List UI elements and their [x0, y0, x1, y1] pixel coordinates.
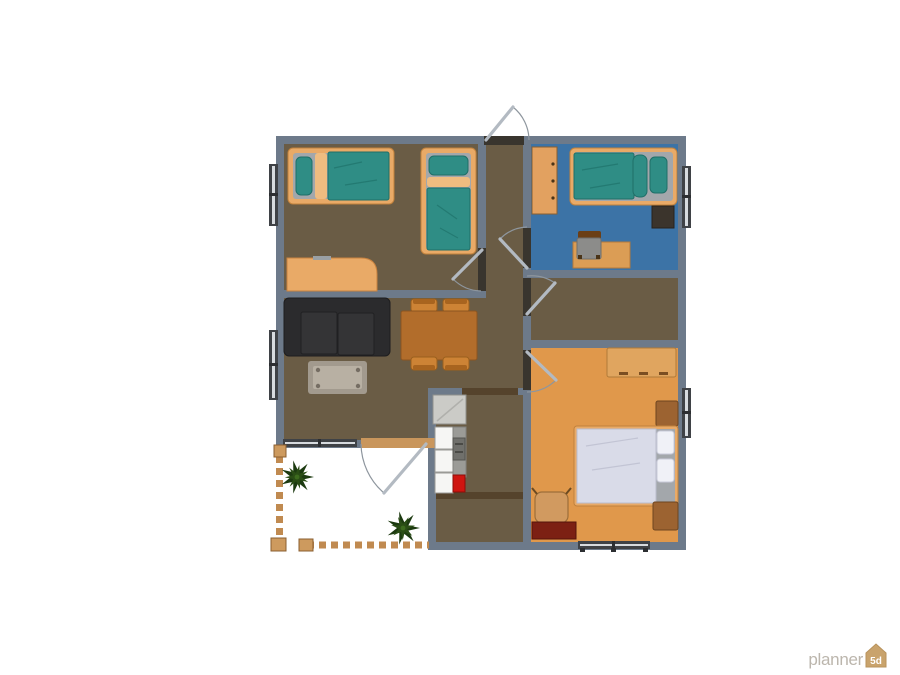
nightstand-bottom[interactable] — [653, 502, 678, 530]
dining-chair-1[interactable] — [411, 299, 437, 312]
wall-corridor-right-d[interactable] — [523, 390, 531, 550]
watermark: planner 5d — [808, 644, 886, 669]
dining-chair-3[interactable] — [411, 357, 437, 370]
wall-blue-room-bottom[interactable] — [523, 270, 686, 278]
fence-post-bottom[interactable] — [299, 539, 313, 551]
entrance-door[interactable] — [486, 107, 529, 140]
window-bottom-living[interactable] — [283, 439, 357, 447]
bed2-blanket-roll — [427, 177, 470, 187]
bed3-pillow — [650, 157, 667, 193]
double-bed[interactable] — [574, 426, 678, 506]
bed3-blanket — [574, 153, 634, 199]
wardrobe[interactable] — [532, 147, 557, 214]
bed1-blanket-roll — [315, 153, 327, 199]
window-right-orange-room[interactable] — [682, 388, 691, 438]
fence-post-corner[interactable] — [271, 538, 286, 551]
single-bed-vertical[interactable] — [421, 148, 476, 254]
watermark-brand-text: planner — [808, 650, 863, 669]
bed2-blanket — [427, 188, 470, 250]
fridge[interactable] — [433, 395, 466, 424]
window-right-blue-room[interactable] — [682, 166, 691, 228]
desk-gray-item — [313, 256, 331, 260]
fence-post-top[interactable] — [274, 445, 286, 457]
blue-room-single-bed[interactable] — [570, 148, 677, 205]
wall-kitchen-top-a[interactable] — [428, 388, 462, 395]
window-left-lower[interactable] — [269, 330, 278, 400]
floor-plan-canvas: planner 5d — [0, 0, 900, 675]
window-left-upper[interactable] — [269, 164, 278, 226]
stove-unit[interactable] — [453, 427, 466, 477]
kitchen-dining-portal[interactable] — [462, 388, 518, 395]
bed1-blanket — [328, 152, 389, 200]
tv-stand[interactable] — [652, 206, 674, 228]
bedroom1-desk[interactable] — [287, 256, 377, 291]
dining-chair-2[interactable] — [443, 299, 469, 312]
watermark-badge-text: 5d — [870, 656, 882, 667]
wall-corridor-right-a[interactable] — [523, 144, 531, 228]
coffee-table[interactable] — [308, 361, 367, 394]
wall-corridor-left[interactable] — [478, 144, 486, 248]
window-bottom-orange-room[interactable] — [578, 541, 650, 552]
dining-table[interactable] — [401, 311, 477, 360]
bed2-pillow — [429, 156, 468, 175]
red-appliance[interactable] — [453, 475, 465, 492]
bed-pillow-2 — [657, 459, 674, 482]
kitchen — [433, 395, 466, 493]
blue-room-door-frame[interactable] — [523, 228, 531, 268]
dining-chair-4[interactable] — [443, 357, 469, 370]
wall-middle-room-bottom[interactable] — [523, 340, 686, 348]
single-bed-horizontal[interactable] — [288, 148, 394, 204]
blue-room-chair[interactable] — [577, 231, 601, 259]
vanity-table[interactable] — [532, 522, 576, 539]
sofa[interactable] — [284, 298, 390, 356]
dresser[interactable] — [607, 348, 676, 377]
kitchen-counter[interactable] — [435, 427, 453, 493]
bed1-pillow — [296, 157, 312, 195]
nightstand-top[interactable] — [656, 401, 678, 426]
bed-pillow-1 — [657, 431, 674, 454]
wall-top[interactable] — [276, 136, 686, 144]
bed3-blanket-roll — [633, 155, 647, 197]
